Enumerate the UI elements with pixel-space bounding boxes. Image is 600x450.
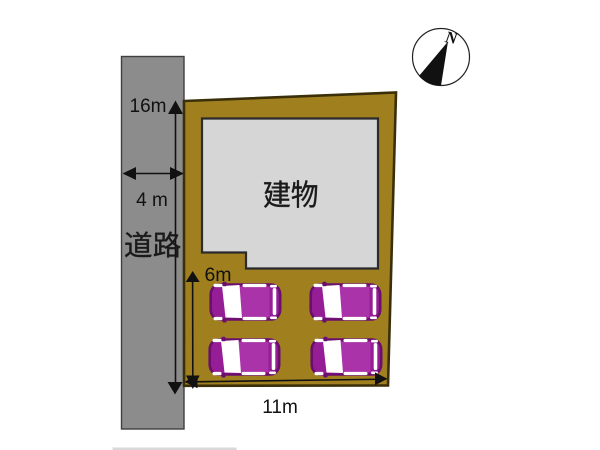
svg-text:11m: 11m bbox=[262, 397, 298, 418]
svg-text:16m: 16m bbox=[130, 96, 167, 117]
svg-text:4 m: 4 m bbox=[136, 190, 168, 211]
svg-text:6m: 6m bbox=[204, 264, 231, 286]
